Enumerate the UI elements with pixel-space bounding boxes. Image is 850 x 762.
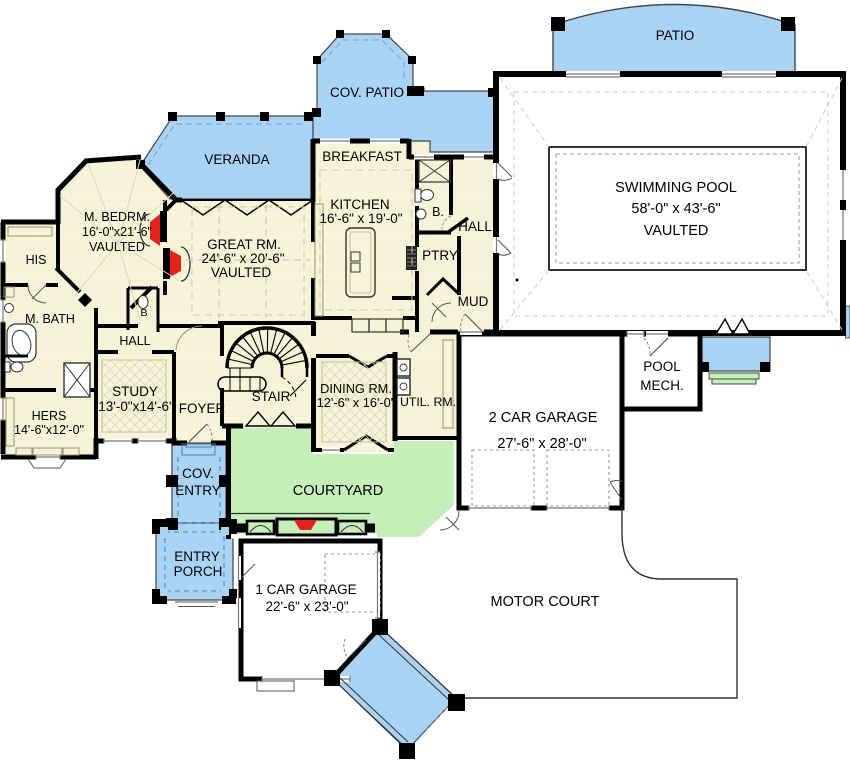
svg-text:COV. PATIO: COV. PATIO <box>330 85 404 100</box>
svg-text:VERANDA: VERANDA <box>204 152 269 167</box>
svg-text:58'-0" x 43'-6": 58'-0" x 43'-6" <box>631 201 720 217</box>
svg-text:VAULTED: VAULTED <box>89 240 145 254</box>
svg-text:24'-6" x 20'-6": 24'-6" x 20'-6" <box>201 251 284 266</box>
svg-text:ENTRY: ENTRY <box>175 483 221 498</box>
svg-text:KITCHEN: KITCHEN <box>330 197 389 212</box>
svg-text:M. BEDRM.: M. BEDRM. <box>84 210 150 224</box>
svg-text:14'-6"x12'-0": 14'-6"x12'-0" <box>14 423 84 437</box>
svg-text:SWIMMING POOL: SWIMMING POOL <box>615 180 737 196</box>
svg-text:COURTYARD: COURTYARD <box>293 483 384 499</box>
svg-text:VAULTED: VAULTED <box>211 265 272 280</box>
svg-text:STUDY: STUDY <box>112 384 158 399</box>
svg-text:COV.: COV. <box>182 466 214 481</box>
svg-text:16'-0"x21'-6": 16'-0"x21'-6" <box>82 225 152 239</box>
svg-text:HERS: HERS <box>32 409 67 423</box>
svg-text:B.: B. <box>432 205 444 219</box>
svg-text:DINING RM.: DINING RM. <box>320 381 392 396</box>
svg-text:VAULTED: VAULTED <box>644 223 709 239</box>
svg-text:POOL: POOL <box>643 359 681 374</box>
svg-text:PATIO: PATIO <box>656 28 695 43</box>
svg-text:BREAKFAST: BREAKFAST <box>322 149 402 164</box>
svg-text:ENTRY: ENTRY <box>174 549 220 564</box>
svg-text:PTRY.: PTRY. <box>422 248 460 263</box>
svg-text:16'-6" x 19'-0": 16'-6" x 19'-0" <box>319 211 402 226</box>
svg-text:MOTOR COURT: MOTOR COURT <box>490 594 599 610</box>
svg-text:MECH.: MECH. <box>640 378 684 393</box>
svg-text:B: B <box>140 307 147 319</box>
svg-text:1 CAR GARAGE: 1 CAR GARAGE <box>255 582 356 597</box>
svg-text:HALL: HALL <box>119 334 150 348</box>
svg-text:M. BATH: M. BATH <box>25 312 75 326</box>
svg-text:HALL: HALL <box>458 219 492 234</box>
svg-text:MUD: MUD <box>458 294 489 309</box>
svg-text:HIS: HIS <box>26 253 47 267</box>
svg-text:GREAT RM.: GREAT RM. <box>207 237 281 252</box>
svg-text:UTIL. RM.: UTIL. RM. <box>400 395 456 409</box>
svg-text:13'-0"x14'-6": 13'-0"x14'-6" <box>98 399 174 414</box>
svg-text:27'-6" x 28'-0": 27'-6" x 28'-0" <box>497 436 586 452</box>
svg-text:22'-6" x 23'-0": 22'-6" x 23'-0" <box>265 599 348 614</box>
svg-text:12'-6" x 16'-0": 12'-6" x 16'-0" <box>317 395 396 410</box>
svg-text:STAIR: STAIR <box>252 389 291 404</box>
svg-text:2 CAR GARAGE: 2 CAR GARAGE <box>489 410 598 426</box>
svg-text:FOYER: FOYER <box>179 401 226 416</box>
svg-text:PORCH: PORCH <box>174 564 223 579</box>
